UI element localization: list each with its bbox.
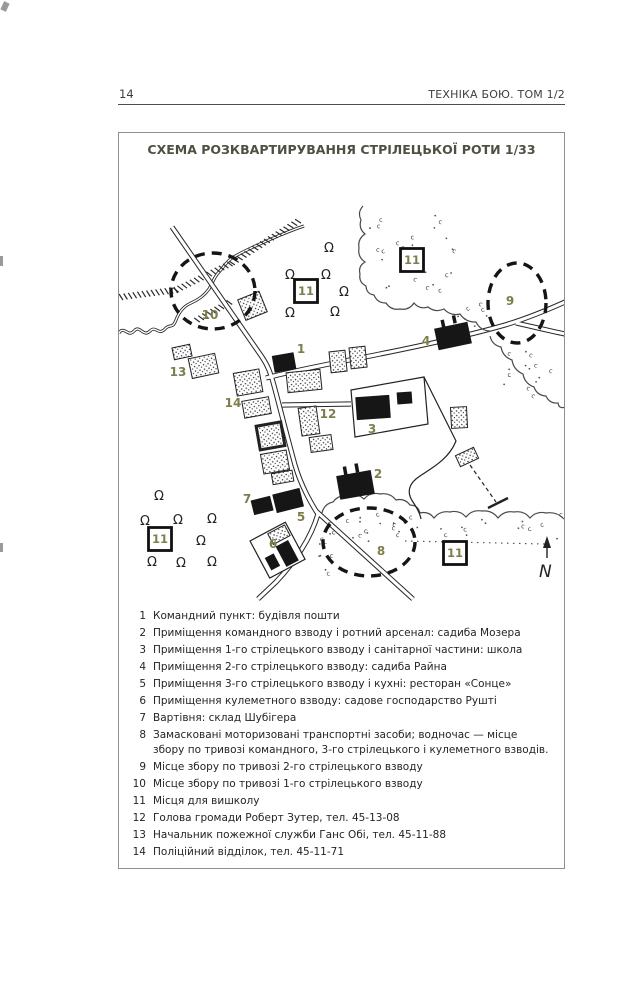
- map-label-1: 1: [297, 342, 305, 356]
- svg-text:c: c: [530, 392, 537, 401]
- svg-text:c: c: [437, 286, 443, 295]
- legend-item-text: Приміщення кулеметного взводу: садове го…: [153, 694, 562, 709]
- legend-item-text: Місце збору по тривозі 1-го стрілецького…: [153, 777, 562, 792]
- legend-item-text: Місце збору по тривозі 2-го стрілецького…: [153, 760, 562, 775]
- svg-text:Ω: Ω: [330, 305, 340, 320]
- legend-item: 9 Місце збору по тривозі 2-го стрілецько…: [119, 760, 562, 775]
- legend-item: 5 Приміщення 3-го стрілецького взводу і …: [119, 677, 562, 692]
- legend-item: 10 Місце збору по тривозі 1-го стрілецьк…: [119, 777, 562, 792]
- map-label-2: 2: [374, 467, 382, 481]
- legend-item-text: Голова громади Роберт Зутер, тел. 45-13-…: [153, 811, 562, 826]
- map-label-10: 10: [202, 308, 219, 322]
- legend-item-number: 1: [119, 609, 146, 624]
- map-label-13: 13: [170, 365, 187, 379]
- svg-text:c: c: [480, 305, 486, 314]
- svg-text:c: c: [395, 239, 400, 247]
- legend-item: 4 Приміщення 2-го стрілецького взводу: с…: [119, 660, 562, 675]
- svg-text:Ω: Ω: [154, 489, 164, 504]
- legend-item: 13 Начальник пожежної служби Ганс Обі, т…: [119, 828, 562, 843]
- scan-speck: [0, 1, 9, 12]
- svg-text:Ω: Ω: [285, 306, 295, 321]
- legend-item-number: 5: [119, 677, 146, 692]
- svg-text:c: c: [326, 569, 331, 577]
- legend-item-text: Приміщення 3-го стрілецького взводу і ку…: [153, 677, 562, 692]
- svg-text:c: c: [374, 510, 381, 519]
- legend-item-text: Приміщення командного взводу і ротний ар…: [153, 626, 562, 641]
- svg-text:Ω: Ω: [173, 513, 183, 528]
- legend-item-text: Вартівня: склад Шубігера: [153, 711, 562, 726]
- svg-text:c: c: [409, 513, 413, 521]
- svg-text:c: c: [548, 367, 553, 376]
- svg-text:c: c: [437, 218, 443, 227]
- svg-text:c: c: [377, 222, 381, 230]
- svg-text:Ω: Ω: [321, 268, 331, 283]
- svg-text:Ω: Ω: [339, 285, 349, 300]
- legend-item-text: Командний пункт: будівля пошти: [153, 609, 562, 624]
- legend-item: 2 Приміщення командного взводу і ротний …: [119, 626, 562, 641]
- svg-text:c: c: [391, 520, 398, 529]
- svg-text:c: c: [525, 384, 532, 393]
- legend-item-number: 11: [119, 794, 146, 809]
- legend-item-text: Начальник пожежної служби Ганс Обі, тел.…: [153, 828, 562, 843]
- figure-title: СХЕМА РОЗКВАРТИРУВАННЯ СТРІЛЕЦЬКОЇ РОТИ …: [119, 142, 564, 157]
- legend-item-number: 4: [119, 660, 146, 675]
- north-arrow: N: [539, 536, 552, 582]
- svg-text:Ω: Ω: [207, 555, 217, 570]
- map-label-9: 9: [506, 294, 514, 308]
- legend-item-number: 13: [119, 828, 146, 843]
- legend-item: 1 Командний пункт: будівля пошти: [119, 609, 562, 624]
- legend-item: 14 Поліційний відділок, тел. 45-11-71: [119, 845, 562, 860]
- legend-item-text: Місця для вишколу: [153, 794, 562, 809]
- legend-item: 8 Замасковані моторизовані транспортні з…: [119, 728, 562, 758]
- map-label-7: 7: [243, 492, 251, 506]
- scan-speck: [0, 256, 3, 266]
- legend-item-number: 10: [119, 777, 146, 792]
- legend-item-text: Замасковані моторизовані транспортні зас…: [153, 728, 562, 758]
- svg-text:11: 11: [447, 546, 463, 560]
- svg-text:c: c: [533, 361, 539, 370]
- svg-text:c: c: [363, 527, 370, 536]
- legend-item-number: 9: [119, 760, 146, 775]
- svg-text:c: c: [463, 525, 468, 533]
- svg-text:Ω: Ω: [207, 512, 217, 527]
- running-title: ТЕХНІКА БОЮ. ТОМ 1/2: [428, 88, 565, 101]
- svg-text:c: c: [424, 283, 431, 292]
- svg-text:Ω: Ω: [147, 555, 157, 570]
- figure-box: СХЕМА РОЗКВАРТИРУВАННЯ СТРІЛЕЦЬКОЇ РОТИ …: [118, 132, 565, 869]
- book-page: 14 ТЕХНІКА БОЮ. ТОМ 1/2 СХЕМА РОЗКВАРТИР…: [0, 0, 632, 1000]
- legend-item-number: 2: [119, 626, 146, 641]
- legend-item-text: Приміщення 1-го стрілецького взводу і са…: [153, 643, 562, 658]
- svg-text:c: c: [528, 351, 534, 360]
- scan-speck: [0, 543, 3, 552]
- map-label-12: 12: [320, 407, 337, 421]
- legend-item-text: Поліційний відділок, тел. 45-11-71: [153, 845, 562, 860]
- legend-item-number: 8: [119, 728, 146, 758]
- legend-item-text: Приміщення 2-го стрілецького взводу: сад…: [153, 660, 562, 675]
- map-label-6: 6: [269, 537, 277, 551]
- svg-text:N: N: [539, 562, 552, 582]
- svg-text:Ω: Ω: [324, 241, 334, 256]
- svg-text:11: 11: [298, 284, 314, 298]
- map-label-8: 8: [377, 544, 385, 558]
- svg-text:c: c: [507, 371, 512, 380]
- legend-item-number: 12: [119, 811, 146, 826]
- map-label-5: 5: [297, 510, 305, 524]
- page-number: 14: [119, 87, 134, 101]
- legend-item-number: 6: [119, 694, 146, 709]
- svg-text:c: c: [451, 247, 458, 256]
- svg-text:c: c: [380, 247, 386, 256]
- legend-item: 12 Голова громади Роберт Зутер, тел. 45-…: [119, 811, 562, 826]
- header-rule: [118, 104, 565, 105]
- legend-item: 6 Приміщення кулеметного взводу: садове …: [119, 694, 562, 709]
- svg-text:Ω: Ω: [196, 534, 206, 549]
- map-legend: 1 Командний пункт: будівля пошти 2 Примі…: [119, 609, 562, 862]
- svg-text:c: c: [527, 525, 533, 534]
- map-label-14: 14: [225, 396, 242, 410]
- svg-text:c: c: [412, 275, 419, 284]
- embankment-hatching: [119, 219, 301, 322]
- map-label-3: 3: [368, 422, 376, 436]
- svg-text:c: c: [345, 517, 350, 525]
- svg-text:c: c: [357, 531, 364, 540]
- svg-text:Ω: Ω: [176, 556, 186, 571]
- legend-item-number: 7: [119, 711, 146, 726]
- legend-item: 7 Вартівня: склад Шубігера: [119, 711, 562, 726]
- svg-text:c: c: [521, 522, 526, 530]
- svg-text:c: c: [506, 350, 512, 359]
- svg-text:c: c: [411, 233, 415, 241]
- legend-item: 3 Приміщення 1-го стрілецького взводу і …: [119, 643, 562, 658]
- svg-text:c: c: [443, 531, 449, 540]
- legend-item-number: 3: [119, 643, 146, 658]
- map-label-4: 4: [422, 334, 430, 348]
- svg-text:11: 11: [404, 253, 420, 267]
- legend-item-number: 14: [119, 845, 146, 860]
- svg-text:c: c: [444, 271, 449, 280]
- garden-nursery-plot: [250, 522, 305, 578]
- svg-text:c: c: [464, 304, 471, 313]
- svg-text:11: 11: [152, 532, 168, 546]
- quartering-map: cccccccccccccccccccccccccccccccccccccccc…: [119, 188, 564, 602]
- svg-text:c: c: [539, 520, 545, 529]
- legend-item: 11 Місця для вишколу: [119, 794, 562, 809]
